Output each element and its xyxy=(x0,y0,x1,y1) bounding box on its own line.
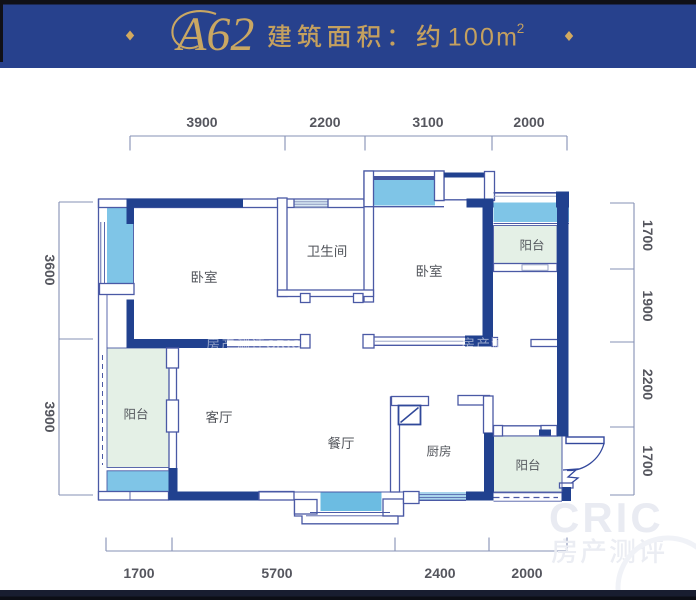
svg-text:3900: 3900 xyxy=(186,114,217,130)
svg-text:1700: 1700 xyxy=(640,220,656,251)
svg-text:2200: 2200 xyxy=(309,114,340,130)
svg-text:2000: 2000 xyxy=(511,565,542,581)
svg-text:A62: A62 xyxy=(174,8,254,61)
svg-text:100m: 100m xyxy=(448,24,519,52)
svg-text:3900: 3900 xyxy=(42,401,58,432)
svg-text:2200: 2200 xyxy=(640,369,656,400)
svg-text:3600: 3600 xyxy=(42,254,58,285)
svg-text:2000: 2000 xyxy=(513,114,544,130)
svg-text:2400: 2400 xyxy=(424,565,455,581)
svg-text:2: 2 xyxy=(517,21,525,36)
svg-text:3100: 3100 xyxy=(412,114,443,130)
svg-text:CRIC: CRIC xyxy=(266,337,302,352)
svg-text:5700: 5700 xyxy=(261,565,292,581)
svg-text:1700: 1700 xyxy=(640,445,656,476)
svg-text:CRIC: CRIC xyxy=(549,494,664,541)
svg-text:1900: 1900 xyxy=(640,290,656,321)
svg-text:1700: 1700 xyxy=(123,565,154,581)
